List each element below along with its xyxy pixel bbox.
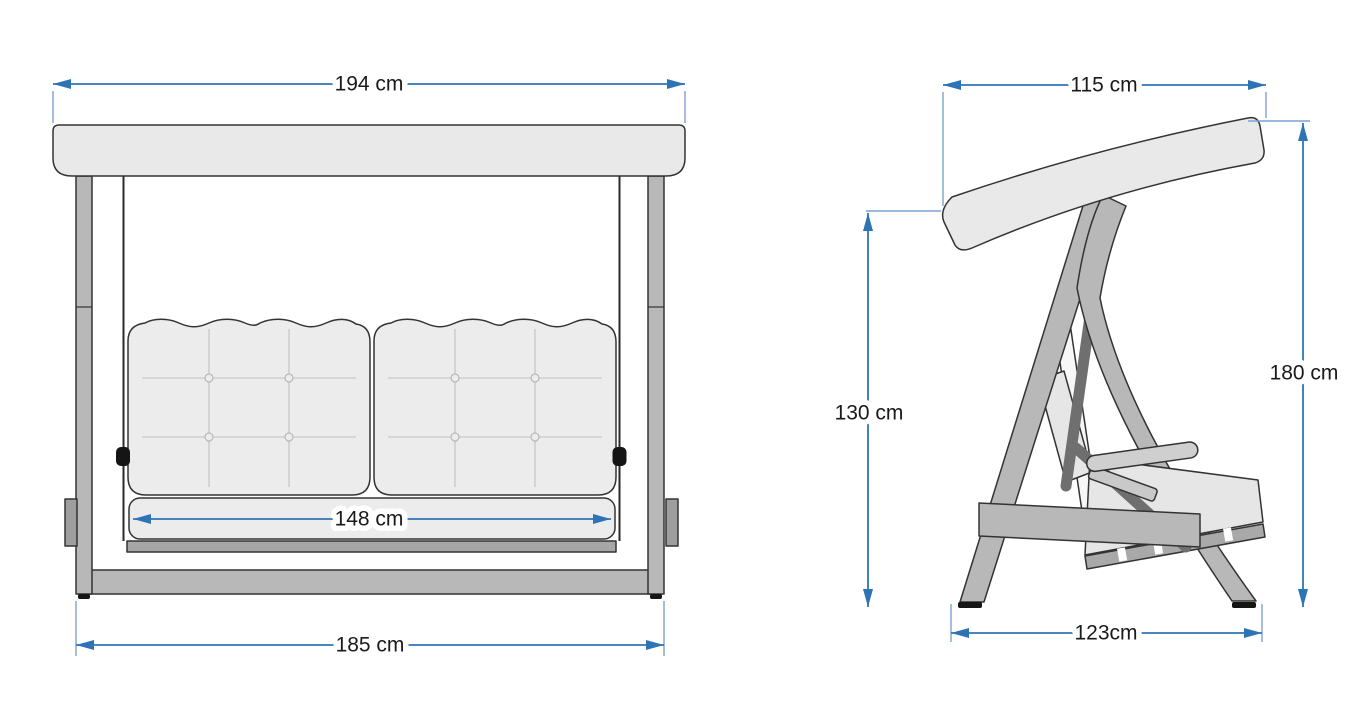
dim-canopy-depth-label: 115 cm	[1070, 74, 1137, 97]
front-view: 194 cm 148 cm 185 cm	[53, 73, 685, 657]
foot-pad-front-left	[78, 594, 90, 599]
dim-height-total-label: 180 cm	[1270, 362, 1339, 385]
dim-base-width-label: 185 cm	[336, 634, 405, 657]
hanger-knob-left	[116, 447, 130, 466]
front-leg-left	[76, 176, 92, 594]
seat-frame-bar	[127, 541, 616, 552]
front-leg-right	[648, 176, 664, 594]
foot-pad-front-right	[650, 594, 662, 599]
dim-seat-width-label: 148 cm	[335, 508, 404, 531]
canopy-front	[53, 125, 685, 176]
back-cushion-left	[128, 319, 370, 495]
dim-canopy-width-label: 194 cm	[335, 73, 404, 96]
base-crossbar	[80, 570, 660, 594]
back-cushion-right	[374, 319, 616, 495]
side-bracket-left	[65, 499, 77, 546]
dim-base-depth-label: 123cm	[1074, 622, 1137, 645]
technical-drawing-page: 194 cm 148 cm 185 cm	[0, 0, 1363, 702]
foot-pad-side-rear	[958, 602, 982, 608]
foot-pad-side-front	[1232, 602, 1256, 608]
side-view: 115 cm 130 cm 180 cm 123cm	[835, 74, 1339, 645]
hanger-knob-right	[613, 447, 627, 466]
side-bracket-right	[666, 499, 678, 546]
swing-dimension-diagram: 194 cm 148 cm 185 cm	[0, 0, 1363, 702]
dim-height-rear-label: 130 cm	[835, 402, 904, 425]
